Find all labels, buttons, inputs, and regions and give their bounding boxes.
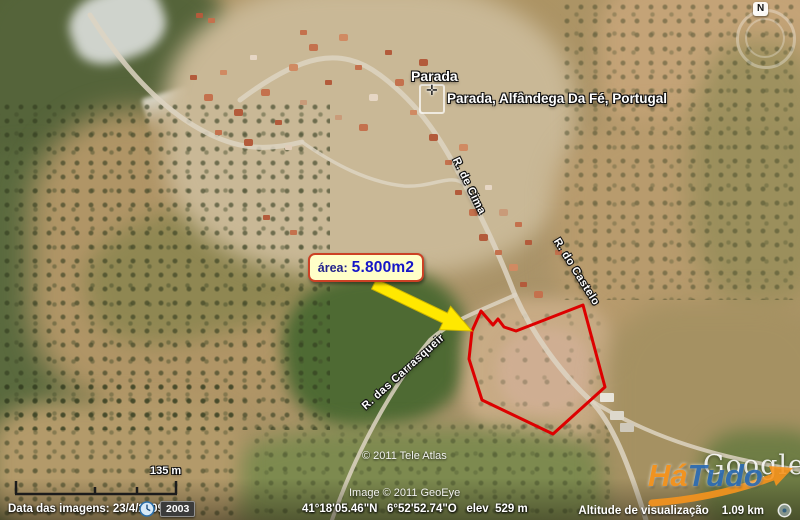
eye-altitude-icon [777,503,792,518]
terrain-village [165,0,575,275]
hatudo-watermark: HáTudo [648,458,763,494]
history-year-button[interactable]: 2003 [160,501,195,517]
street-label-carrasqueira: R. das Carrasqueir [360,332,447,412]
compass-ring[interactable] [736,9,796,69]
parcel-polygon [469,305,605,434]
copyright-geoeye: Image © 2011 GeoEye [349,487,460,499]
terrain-parcel-dirt [463,298,618,443]
coordinates-readout: 41°18'05.46"N 6°52'52.74"O elev 529 m [302,503,528,515]
terrain-forest-topleft [0,0,230,210]
area-callout-prefix: área: [318,261,348,275]
terrain-field-bottomleft [0,400,240,520]
history-clock-icon[interactable] [139,501,155,517]
terrain-grove-left [30,110,320,410]
altitude-readout: Altitude de visualização 1.09 km [578,503,792,518]
compass-inner-ring [745,18,785,58]
terrain-white-building [141,86,199,140]
area-callout-value: 5.800m2 [352,259,415,277]
terrain-forest-midleft [0,150,90,440]
north-indicator[interactable]: N [753,2,768,16]
placemark-full-label: Parada, Alfândega Da Fé, Portugal [447,91,667,106]
terrain-field-right [555,115,800,345]
placemark-label: Parada [411,68,458,84]
terrain-grove-right-strip [690,40,800,310]
farm-building [600,393,614,402]
altitude-value: 1.09 km [722,505,764,517]
scale-bar-label: 135 m [150,465,181,477]
terrain-grove-band [73,178,337,362]
altitude-label: Altitude de visualização [578,505,708,517]
terrain-parcel-dirt-pink [498,328,593,413]
map-canvas[interactable]: área: 5.800m2 ✛ Parada Parada, Alfândega… [0,0,800,520]
pointer-arrow [372,279,472,331]
terrain-green-field [273,260,478,439]
placemark-crosshair-icon[interactable]: ✛ [426,82,438,99]
terrain-forest-left [0,0,105,520]
grove-dots-bottomleft [0,380,240,520]
copyright-tele-atlas: © 2011 Tele Atlas [362,450,447,462]
village-rooftops [0,0,7,5]
grove-dots-parcel [470,305,610,440]
street-label-cima: R. de Cima [450,156,488,217]
hatudo-watermark-part1: Há [648,458,688,493]
terrain-quarry [61,0,174,74]
grove-dots-left [0,100,330,430]
area-callout: área: 5.800m2 [308,253,424,282]
street-label-castelo: R. do Castelo [551,236,602,307]
hatudo-watermark-part2: Tudo [688,458,763,493]
